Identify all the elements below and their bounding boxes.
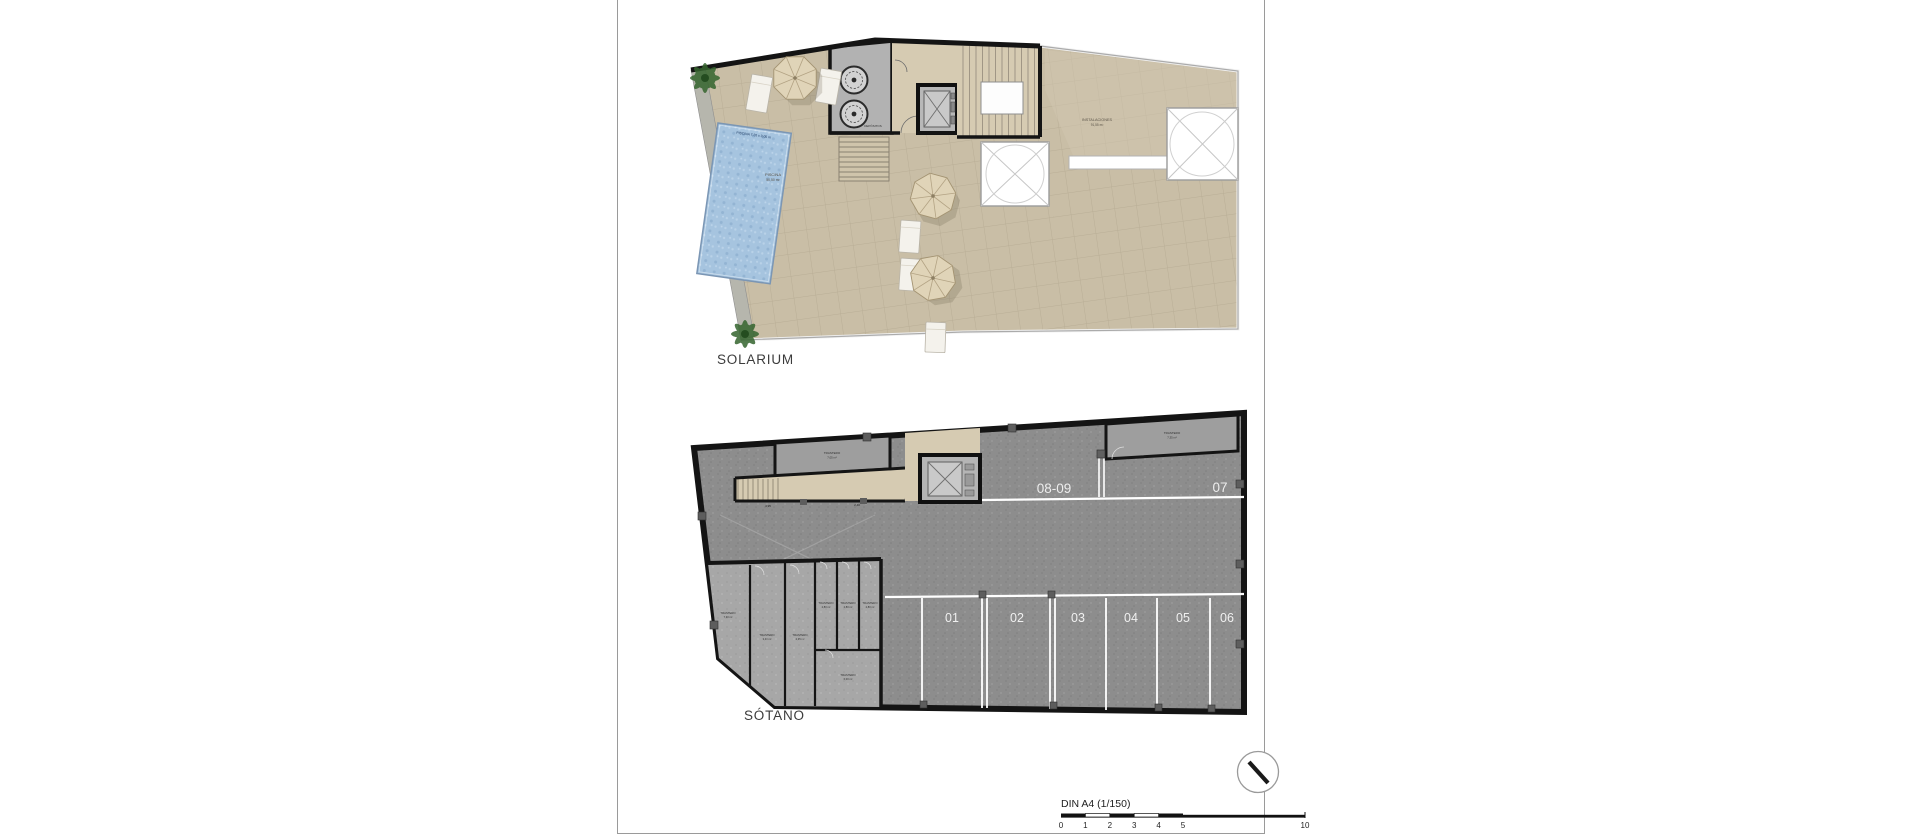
instalaciones-area-label: 91,55 m² <box>1091 123 1104 127</box>
plant-icon <box>690 63 720 93</box>
stair-landing <box>981 82 1023 114</box>
room-label: TRASTERO <box>759 633 775 637</box>
room-label: TRASTERO <box>792 633 808 637</box>
room-label: TRASTERO <box>824 451 841 455</box>
scale-tick: 10 <box>1301 821 1310 830</box>
room-area-label: 6,00 m² <box>844 677 853 681</box>
staircase-up <box>957 44 1040 137</box>
sun-lounger <box>899 220 921 253</box>
room-label: TRASTERO <box>720 611 736 615</box>
basement-floor-plan: TRASTERO 7,05 m² <box>680 400 1260 730</box>
pool-area-label: 50,50 m² <box>766 178 780 182</box>
room-area-label: 3,40 m² <box>763 637 772 641</box>
scale-tick: 4 <box>1156 821 1161 830</box>
room-area-label: 7,35 m² <box>1167 436 1177 440</box>
room-label: TRASTERO <box>862 601 878 605</box>
parking-spot-label: 02 <box>1010 611 1024 625</box>
skylight <box>1167 108 1238 180</box>
storage-room-top-right: TRASTERO 7,35 m² <box>1106 415 1238 459</box>
tank-icon <box>841 67 868 94</box>
elevator <box>920 455 980 502</box>
solarium-floor-plan: PISCINA 7,20 x 3,05 m PISCINA 50,50 m² D… <box>645 30 1245 375</box>
scale-tick: 0 <box>1059 821 1064 830</box>
room-area-label: 2,35 m² <box>796 637 805 641</box>
room-label: TRASTERO <box>1164 431 1181 435</box>
dimension-label: 2,40 <box>854 503 860 507</box>
solarium-plan-title: SOLARIUM <box>717 352 794 367</box>
sun-lounger <box>925 322 946 353</box>
parking-spot-label: 06 <box>1220 611 1234 625</box>
walkway-band <box>1069 156 1167 169</box>
parking-spot-label: 03 <box>1071 611 1085 625</box>
parking-spot-label: 04 <box>1124 611 1138 625</box>
scale-ticks: 0 1 2 3 4 5 10 <box>1059 821 1310 830</box>
scale-label: DIN A4 (1/150) <box>1061 798 1130 810</box>
room-label: TRASTERO <box>840 601 856 605</box>
room-label: TRASTERO <box>818 601 834 605</box>
instalaciones-name-label: INSTALACIONES <box>1082 118 1113 122</box>
room-area-label: 2,80 m² <box>844 605 853 609</box>
room-area-label: 7,30 m² <box>724 615 733 619</box>
architectural-sheet: PISCINA 7,20 x 3,05 m PISCINA 50,50 m² D… <box>0 0 1920 837</box>
storage-block: TRASTERO 7,30 m² TRASTERO 3,40 m² TRASTE… <box>708 559 881 707</box>
dimension-label: 4,95 <box>765 504 771 508</box>
parking-spot-label: 07 <box>1212 480 1227 495</box>
room-label: TRASTERO <box>840 673 856 677</box>
room-area-label: 2,80 m² <box>822 605 831 609</box>
scale-tick: 3 <box>1132 821 1137 830</box>
parking-spot-label: 01 <box>945 611 959 625</box>
staircase-down <box>839 137 889 181</box>
plant-icon <box>731 320 759 348</box>
room-area-label: 2,80 m² <box>866 605 875 609</box>
parking-spot-label: 05 <box>1176 611 1190 625</box>
skylight <box>981 142 1049 206</box>
scale-tick: 5 <box>1181 821 1186 830</box>
pillar <box>1097 450 1105 458</box>
scale-tick: 1 <box>1083 821 1088 830</box>
pillar <box>860 498 867 504</box>
room-area-label: 7,05 m² <box>827 456 837 460</box>
depositos-label: DEPÓSITOS <box>864 123 881 128</box>
pool-name-label: PISCINA <box>765 172 781 177</box>
scale-tick: 2 <box>1108 821 1113 830</box>
pillar <box>800 499 807 505</box>
elevator <box>918 85 957 133</box>
sotano-plan-title: SÓTANO <box>744 708 805 723</box>
parking-spot-label: 08-09 <box>1037 481 1072 496</box>
north-arrow-icon <box>1222 742 1297 807</box>
